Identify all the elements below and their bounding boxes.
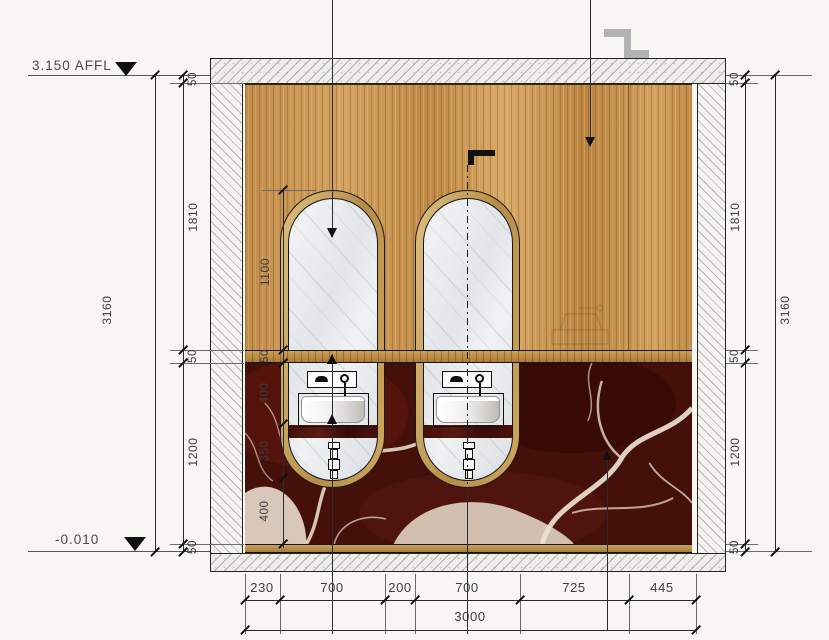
dim-line xyxy=(745,75,746,552)
dim-label: 1810 xyxy=(186,195,200,239)
dim-label: 50 xyxy=(186,57,200,101)
wall-section-right xyxy=(697,84,726,553)
leader-line-wood xyxy=(590,0,591,146)
extension-line xyxy=(629,574,630,634)
faucet-spout-icon xyxy=(315,376,328,382)
centerline-extension xyxy=(467,488,468,634)
level-marker-icon xyxy=(124,537,146,551)
basin-right xyxy=(436,396,500,423)
dim-label: 1200 xyxy=(728,430,742,474)
section-centerline xyxy=(467,165,469,487)
dim-label: 1810 xyxy=(728,195,742,239)
faucet-spout-icon xyxy=(450,376,463,382)
elevation-sheet: 3.150 AFFL -0.010 50 1810 50 1200 50 316… xyxy=(0,0,829,640)
dim-line xyxy=(775,75,776,552)
leader-line-marble xyxy=(607,450,608,631)
dim-label: 350 xyxy=(258,429,272,473)
leader-arrow-up-icon xyxy=(327,354,337,364)
dim-label: 400 xyxy=(258,489,272,533)
faucet-knob-icon xyxy=(475,374,484,383)
dim-label: 445 xyxy=(637,580,687,595)
dim-label: 1200 xyxy=(186,430,200,474)
bottle-trap-right xyxy=(463,442,475,449)
bottle-trap-left-body xyxy=(328,459,340,470)
dim-label: 50 xyxy=(186,334,200,378)
leader-line-shelf xyxy=(332,354,333,634)
floor-slab xyxy=(210,553,726,572)
extension-line xyxy=(696,574,697,634)
dim-line xyxy=(155,75,156,552)
bottle-trap-left xyxy=(328,442,340,449)
dim-label: 230 xyxy=(237,580,287,595)
dim-label: 725 xyxy=(549,580,599,595)
extension-line xyxy=(262,190,316,191)
extension-line xyxy=(520,574,521,634)
leader-arrow-up-icon xyxy=(327,414,337,424)
wall-section-left xyxy=(210,84,243,553)
skirting xyxy=(245,544,692,553)
dim-line xyxy=(183,75,184,552)
bottle-trap-right-body xyxy=(463,459,475,470)
dim-label: 50 xyxy=(728,57,742,101)
dim-label-total: 3160 xyxy=(778,288,792,332)
faucet-knob-icon xyxy=(340,374,349,383)
dim-label: 400 xyxy=(258,371,272,415)
dim-label-total: 3160 xyxy=(100,288,114,332)
dim-label: 50 xyxy=(728,334,742,378)
step-symbol-icon xyxy=(604,29,650,59)
level-label-top: 3.150 AFFL xyxy=(32,58,112,73)
dim-line xyxy=(283,190,284,548)
leader-arrow-down-icon xyxy=(327,228,337,238)
leader-arrow-up-icon xyxy=(602,450,612,460)
leader-line-mirror xyxy=(332,0,333,237)
dim-label: 50 xyxy=(186,525,200,569)
dim-label: 200 xyxy=(375,580,425,595)
dim-label: 1100 xyxy=(258,250,272,294)
dim-label-total: 3000 xyxy=(445,609,495,624)
counter-shelf xyxy=(245,350,692,363)
wood-grain-sketch xyxy=(538,300,630,352)
level-marker-icon xyxy=(115,62,137,76)
dim-line xyxy=(245,630,697,631)
ceiling-slab xyxy=(210,58,726,84)
leader-arrow-down-icon xyxy=(585,137,595,147)
dim-label: 50 xyxy=(728,525,742,569)
level-label-bottom: -0.010 xyxy=(55,532,99,547)
